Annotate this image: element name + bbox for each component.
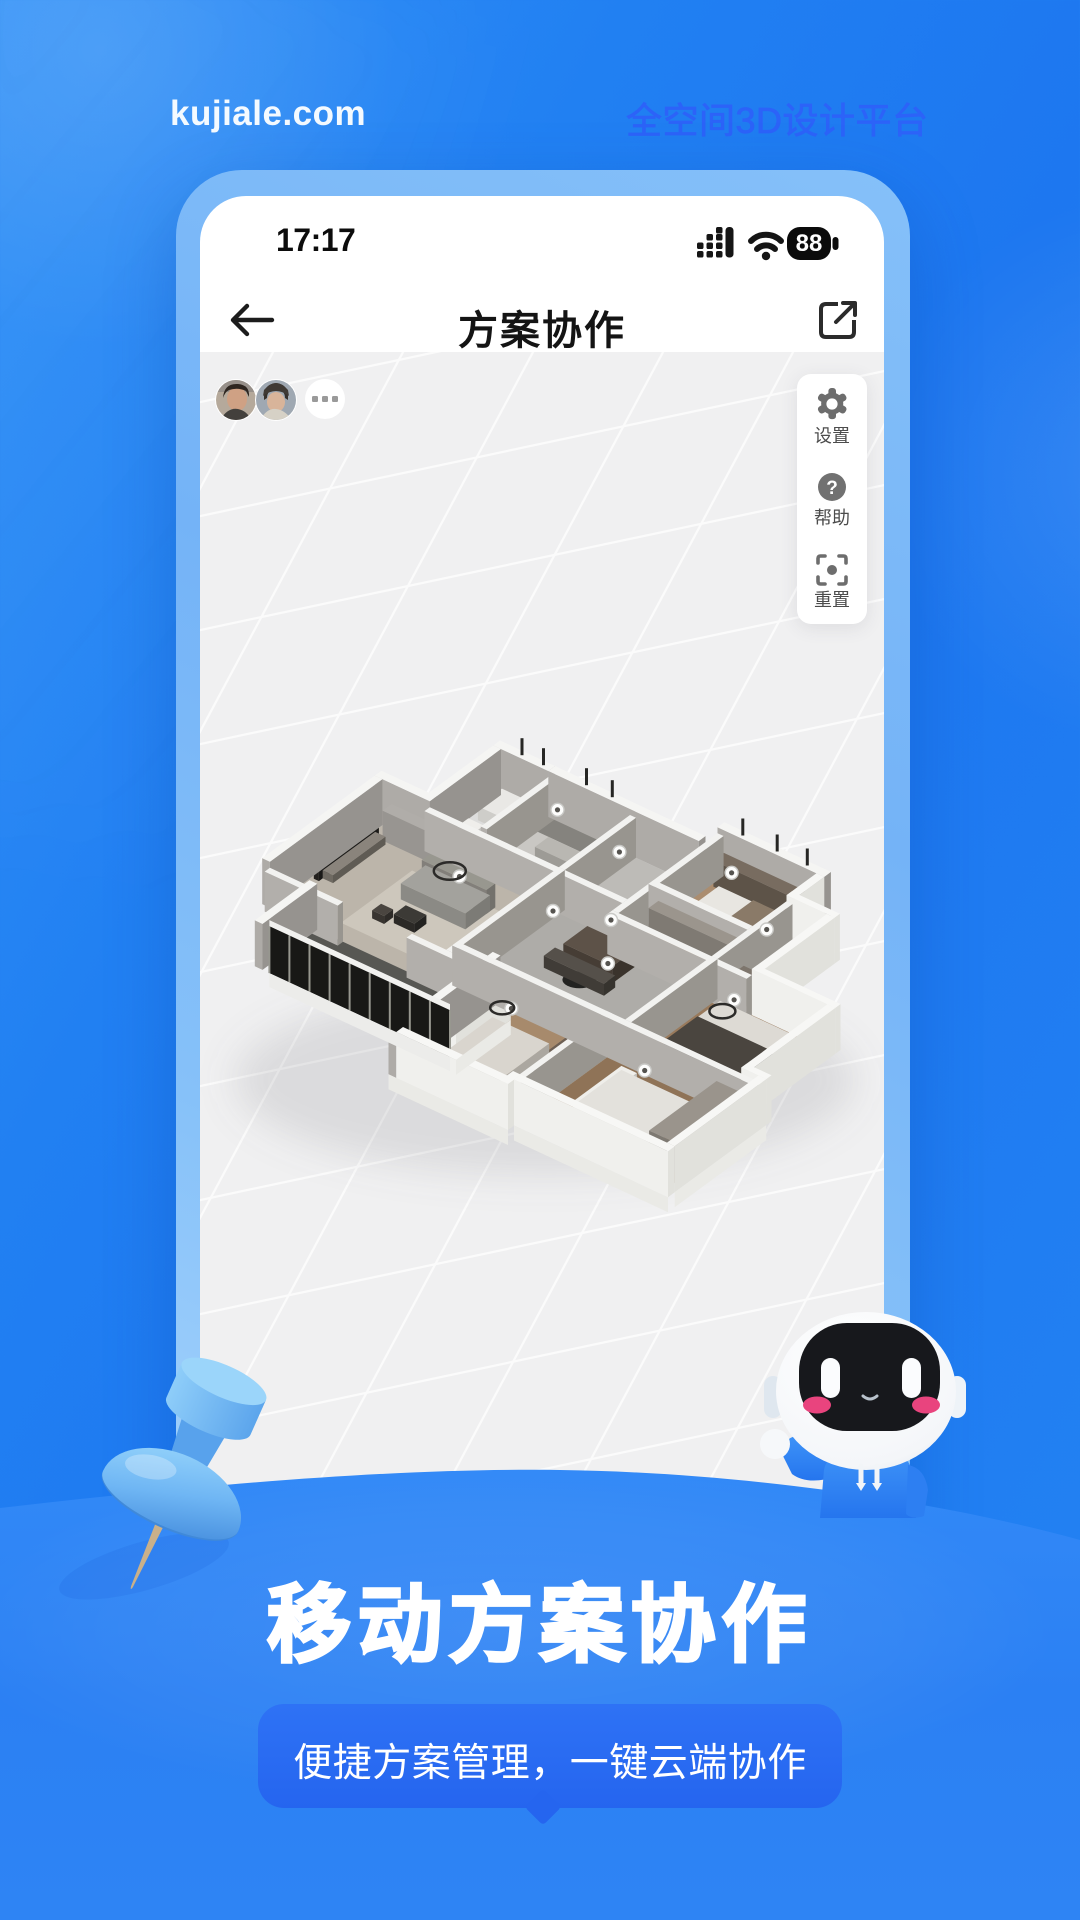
svg-text:88: 88 — [796, 230, 823, 257]
svg-text:?: ? — [826, 478, 838, 499]
